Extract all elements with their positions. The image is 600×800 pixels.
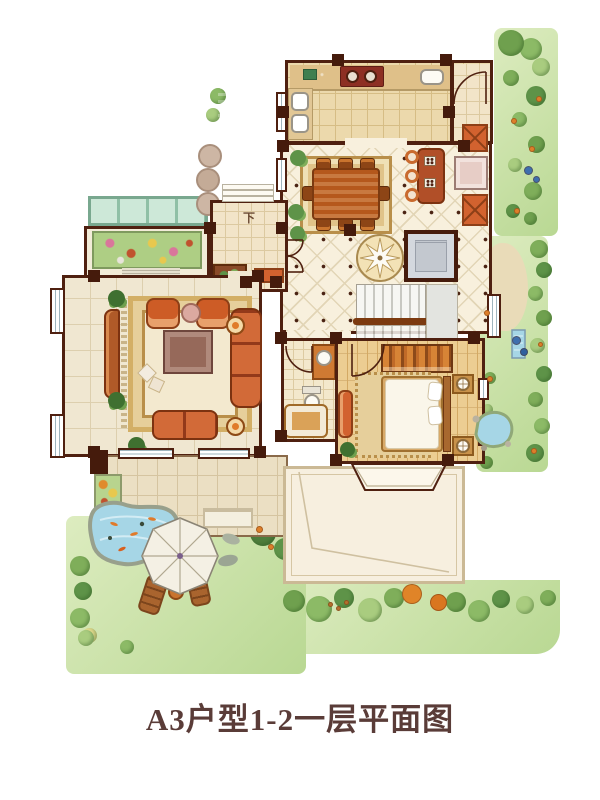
garden-bush (358, 598, 382, 622)
garden-bush (528, 286, 543, 301)
potted-plant (340, 442, 355, 457)
wall-pier (240, 276, 252, 288)
bar-stool (405, 188, 419, 202)
bathtub (284, 404, 328, 438)
bar-plate (424, 178, 436, 188)
elevator-cab (415, 240, 447, 272)
kitchen-sink (420, 69, 444, 85)
burner (364, 70, 377, 83)
bar-plate (424, 156, 436, 166)
side-table (181, 303, 201, 323)
cabinet (462, 194, 488, 226)
floor-plan-image: 下 (0, 0, 600, 800)
garden-accent (512, 336, 521, 345)
wardrobe-closet (381, 344, 453, 373)
wall-pier (458, 140, 470, 152)
stairs-upper-flight (356, 284, 426, 320)
table-lamp (456, 377, 470, 391)
garden-accent (511, 118, 517, 124)
wall-pier (330, 454, 342, 466)
patio-flowerbox (94, 474, 122, 512)
garden-bush (508, 158, 522, 172)
wall-pier (443, 106, 455, 118)
garden-bush (446, 592, 466, 612)
sink-basin (291, 114, 309, 133)
wall-pier (442, 454, 454, 466)
refrigerator (454, 156, 488, 190)
garden-accent (402, 584, 422, 604)
rug-fringe (121, 300, 127, 428)
wall-pier (276, 222, 288, 234)
garden-bush (536, 310, 552, 326)
garden-accent (524, 166, 533, 175)
armchair (146, 298, 180, 329)
window (478, 424, 489, 446)
coffee-table (163, 330, 213, 374)
table-lamp (456, 439, 470, 453)
garden-bush (306, 596, 332, 622)
sink-basin (291, 92, 309, 111)
burner (346, 70, 359, 83)
garden-accent (487, 376, 493, 382)
wall-pier (468, 332, 480, 344)
wall-pier (275, 430, 287, 442)
wall-pier (330, 332, 342, 344)
potted-plant (290, 150, 306, 166)
garden-bush (528, 392, 543, 407)
wall-pier (252, 270, 264, 282)
window (487, 294, 501, 338)
potted-plant (288, 204, 304, 220)
garden-accent (529, 146, 535, 152)
potted-plant (290, 226, 305, 241)
side-table (226, 316, 245, 335)
garden-accent (533, 176, 540, 183)
tree (196, 168, 220, 192)
chaise-bench (338, 390, 353, 438)
garden-bush (540, 590, 556, 606)
plan-title: A3户型1-2一层平面图 (0, 694, 600, 739)
palm-plant (108, 392, 125, 409)
toilet-tank (302, 386, 321, 394)
garden-bush (384, 588, 404, 608)
garden-bush (78, 630, 94, 646)
wall-pier (254, 446, 266, 458)
patio-bench (203, 508, 253, 528)
garden-accent (256, 526, 263, 533)
dining-table (312, 168, 380, 220)
garden-bush (503, 70, 519, 86)
garden-bush (283, 590, 305, 612)
wall-pier (440, 54, 452, 66)
garden-bush (536, 366, 552, 382)
garden-accent (536, 96, 542, 102)
wall-pier (275, 332, 287, 344)
kitchen-opening (345, 138, 407, 148)
stairs-railing (353, 318, 429, 325)
wall-pier (277, 140, 289, 152)
garden-bush (530, 240, 548, 258)
wall-pier (270, 276, 282, 288)
wall-pier (277, 106, 289, 118)
garden-accent (514, 208, 520, 214)
garden-bush (120, 640, 134, 654)
garden-accent (484, 310, 490, 316)
garden-accent (328, 602, 333, 607)
garden-bush (524, 182, 542, 200)
bay-window (50, 288, 65, 334)
garden-bush (468, 600, 490, 622)
wall-pier (88, 270, 100, 282)
garden-bush (70, 556, 90, 576)
bed-pillow (427, 381, 443, 401)
garden-table (168, 584, 184, 600)
bar-stool (405, 150, 419, 164)
garden-accent (344, 600, 349, 605)
entry-steps (222, 184, 274, 202)
bar-stool (405, 169, 419, 183)
palm-plant (108, 290, 125, 307)
armchair (196, 298, 230, 329)
garden-bush (534, 418, 550, 434)
entry-steps-down-label: 下 (243, 209, 255, 226)
side-table (226, 417, 245, 436)
garden-bush (74, 582, 92, 600)
wall-pier (332, 54, 344, 66)
garden-bush (524, 212, 537, 225)
garden-bush (334, 588, 354, 608)
garden-bush (532, 58, 550, 76)
garden-bush (516, 596, 534, 614)
courtyard-flowerbed (92, 231, 202, 269)
garden-accent (538, 342, 543, 347)
canopy-frame (88, 196, 208, 226)
window (198, 448, 250, 459)
window (276, 158, 287, 192)
garden-bush (492, 590, 510, 608)
wall-pier (344, 224, 356, 236)
garden-bush (536, 262, 552, 278)
vanity-sink (316, 350, 332, 366)
garden-accent (520, 348, 528, 356)
bay-window (50, 414, 65, 458)
garden-accent (430, 594, 447, 611)
wall-pier (88, 446, 100, 458)
tree (198, 144, 222, 168)
garden-accent (336, 606, 341, 611)
garden-bush (498, 30, 524, 56)
cutting-board (303, 69, 317, 80)
garden-accent (531, 448, 537, 454)
wall-pier (204, 222, 216, 234)
garden-bush (70, 608, 90, 628)
headboard (443, 376, 451, 452)
patio (96, 455, 288, 537)
window (118, 448, 174, 459)
console-table (104, 309, 120, 399)
sofa-loveseat (152, 410, 218, 440)
terrace-inner-line (291, 474, 457, 576)
garden-accent (268, 544, 274, 550)
bed-pillow (427, 405, 443, 425)
